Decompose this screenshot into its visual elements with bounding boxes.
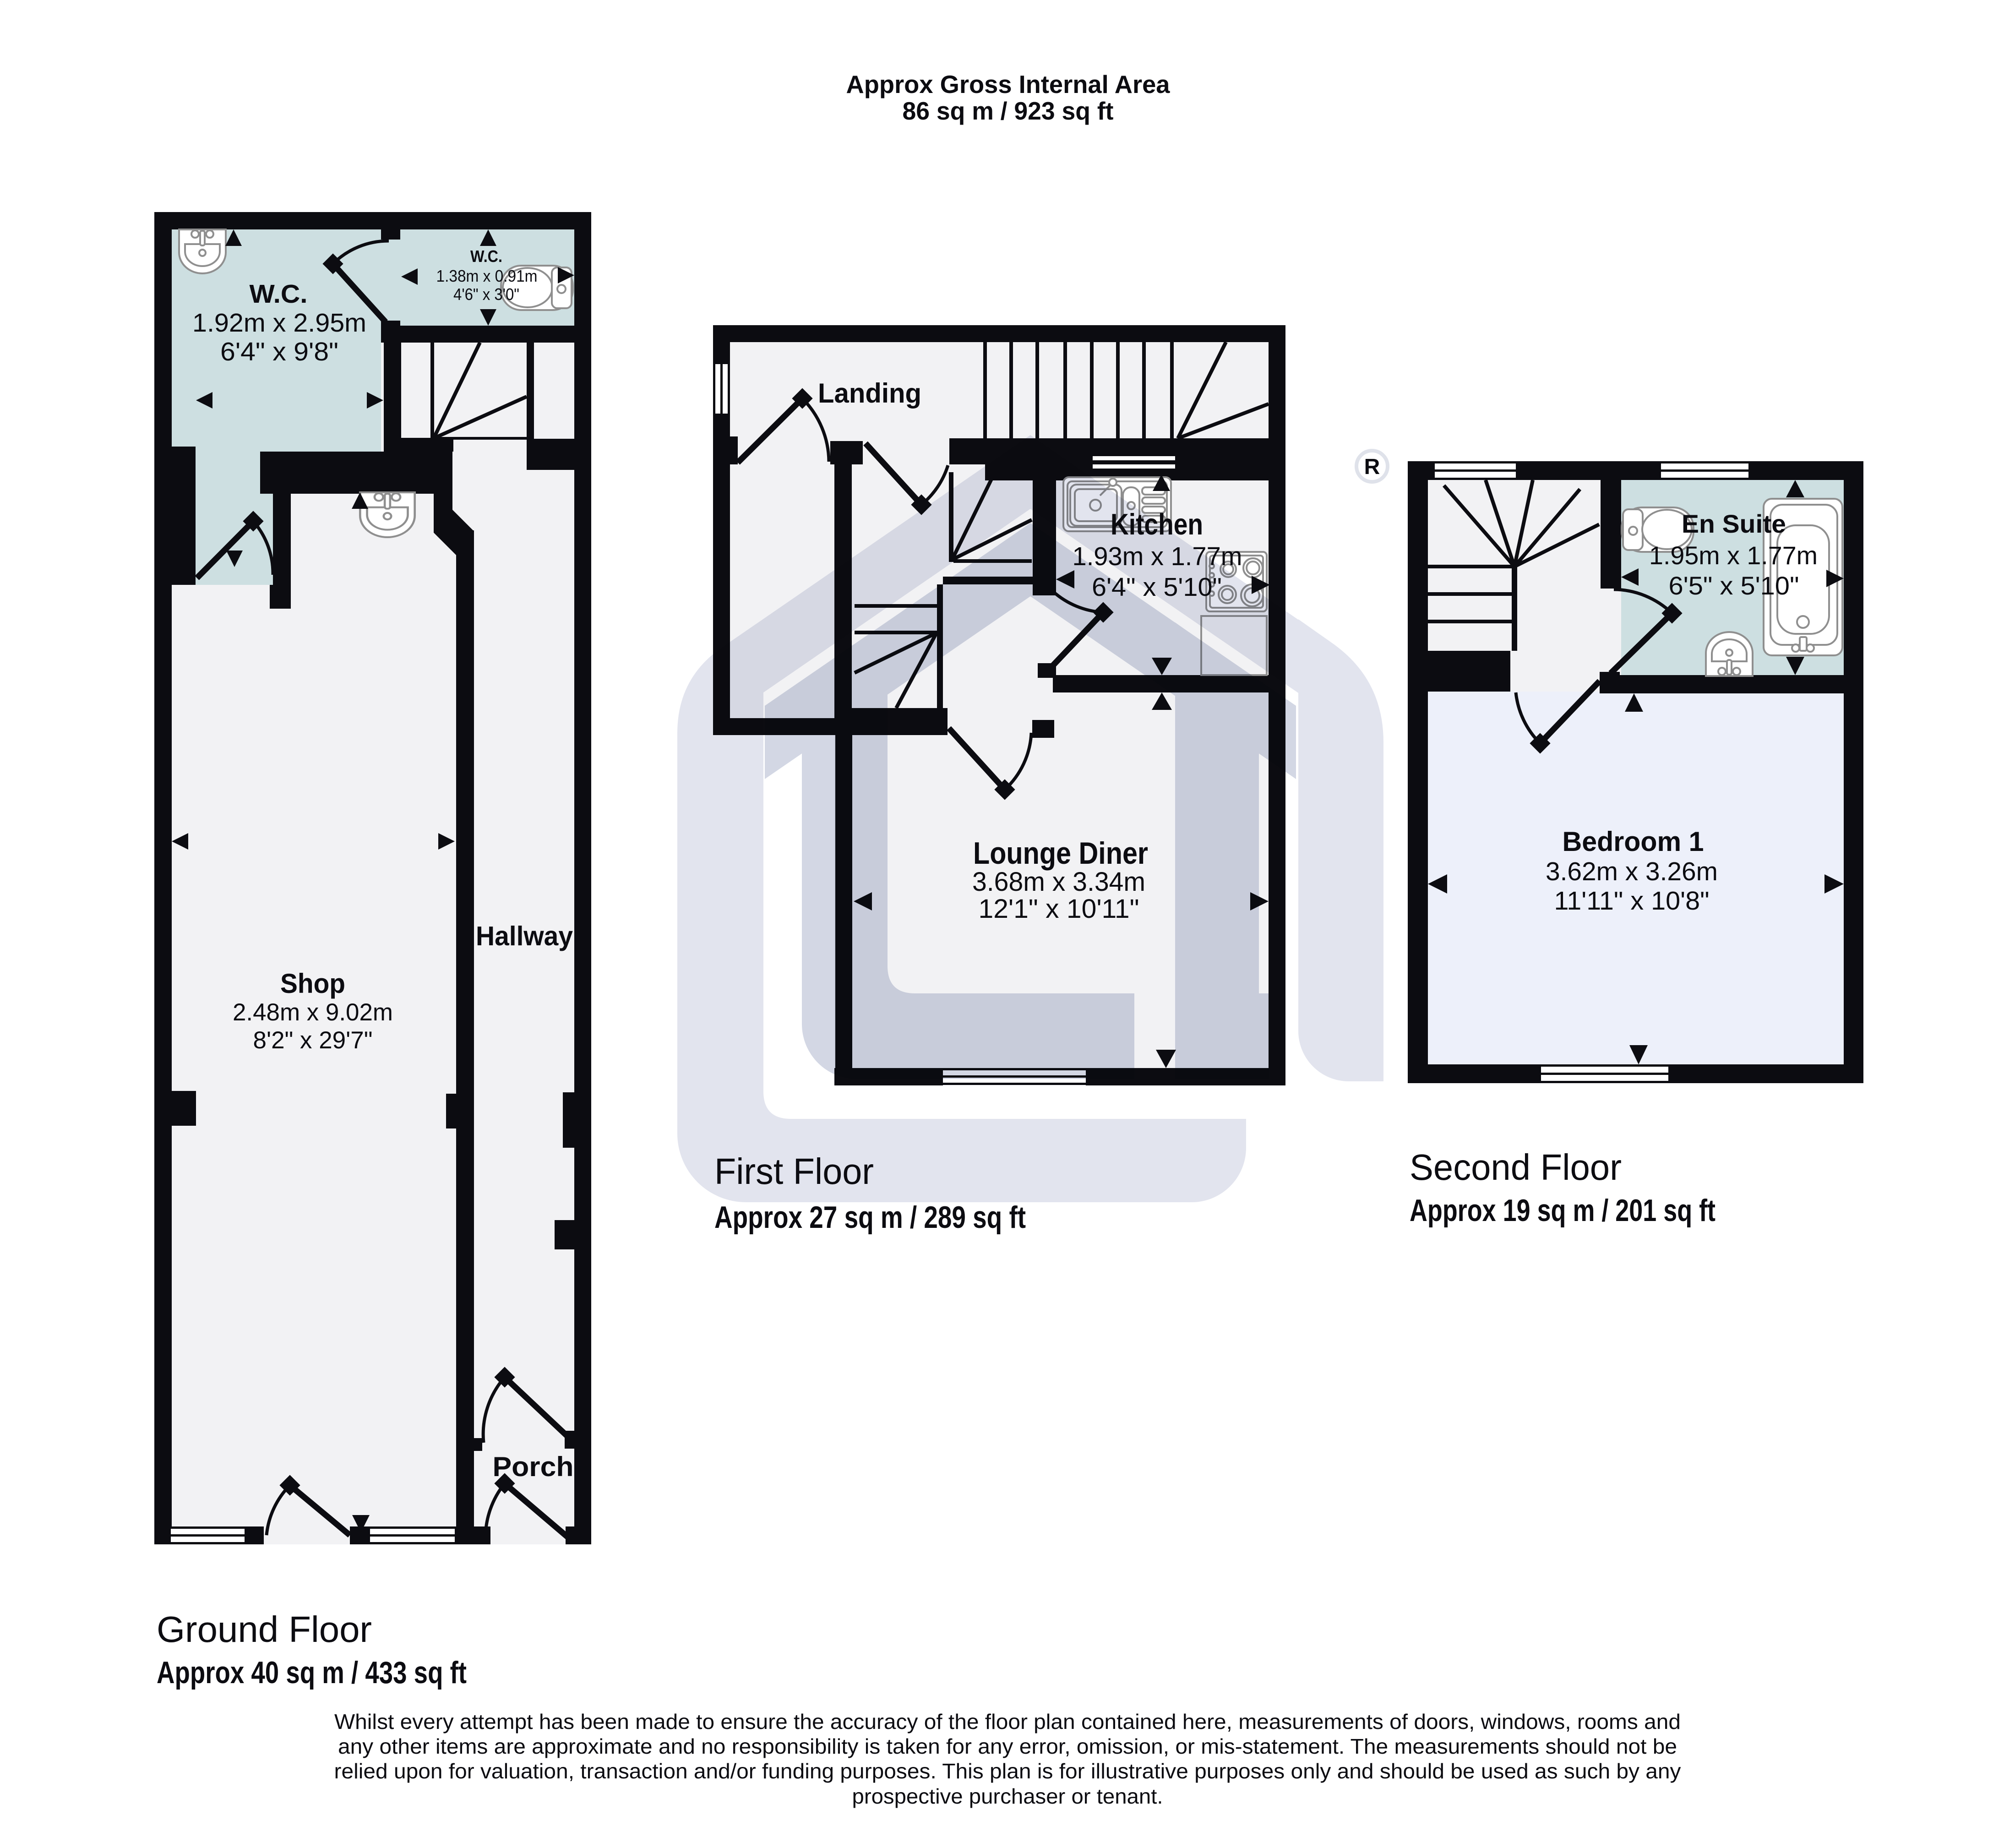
svg-text:Lounge Diner: Lounge Diner	[973, 836, 1148, 871]
svg-text:86 sq m / 923 sq ft: 86 sq m / 923 sq ft	[903, 97, 1114, 125]
svg-text:11'11" x 10'8": 11'11" x 10'8"	[1554, 886, 1710, 916]
svg-text:6'4" x 9'8": 6'4" x 9'8"	[220, 337, 338, 366]
svg-text:En Suite: En Suite	[1682, 509, 1786, 538]
svg-text:1.38m x 0.91m: 1.38m x 0.91m	[436, 267, 538, 285]
svg-text:prospective purchaser or tenan: prospective purchaser or tenant.	[852, 1784, 1163, 1808]
svg-text:Landing: Landing	[818, 378, 921, 409]
svg-text:3.68m x 3.34m: 3.68m x 3.34m	[972, 867, 1145, 897]
svg-text:any other items are approximat: any other items are approximate and no r…	[338, 1734, 1677, 1758]
svg-text:Ground Floor: Ground Floor	[157, 1609, 372, 1650]
svg-text:2.48m x 9.02m: 2.48m x 9.02m	[233, 999, 393, 1026]
svg-text:8'2" x 29'7": 8'2" x 29'7"	[253, 1027, 373, 1054]
svg-text:4'6" x 3'0": 4'6" x 3'0"	[453, 285, 519, 304]
svg-text:Bedroom 1: Bedroom 1	[1563, 826, 1704, 857]
svg-text:Whilst every attempt has been: Whilst every attempt has been made to en…	[334, 1710, 1681, 1734]
svg-text:Second Floor: Second Floor	[1410, 1147, 1622, 1188]
svg-text:1.95m x 1.77m: 1.95m x 1.77m	[1649, 541, 1818, 570]
svg-text:3.62m x 3.26m: 3.62m x 3.26m	[1546, 857, 1718, 886]
svg-text:First Floor: First Floor	[714, 1151, 874, 1192]
svg-text:6'5" x 5'10": 6'5" x 5'10"	[1669, 571, 1799, 600]
svg-text:R: R	[1364, 455, 1380, 479]
svg-text:Approx 19 sq m / 201 sq ft: Approx 19 sq m / 201 sq ft	[1410, 1193, 1715, 1228]
svg-text:Approx 27 sq m / 289 sq ft: Approx 27 sq m / 289 sq ft	[714, 1200, 1026, 1235]
svg-text:Approx 40 sq m / 433 sq ft: Approx 40 sq m / 433 sq ft	[157, 1655, 467, 1690]
svg-text:Approx Gross Internal Area: Approx Gross Internal Area	[846, 70, 1170, 98]
svg-text:relied upon for valuation, tra: relied upon for valuation, transaction a…	[334, 1759, 1681, 1783]
svg-text:W.C.: W.C.	[470, 247, 502, 266]
svg-text:W.C.: W.C.	[250, 279, 308, 309]
svg-text:12'1" x 10'11": 12'1" x 10'11"	[979, 894, 1139, 924]
svg-text:Hallway: Hallway	[476, 921, 573, 951]
svg-text:1.92m x 2.95m: 1.92m x 2.95m	[192, 308, 366, 338]
svg-text:Shop: Shop	[280, 968, 345, 999]
